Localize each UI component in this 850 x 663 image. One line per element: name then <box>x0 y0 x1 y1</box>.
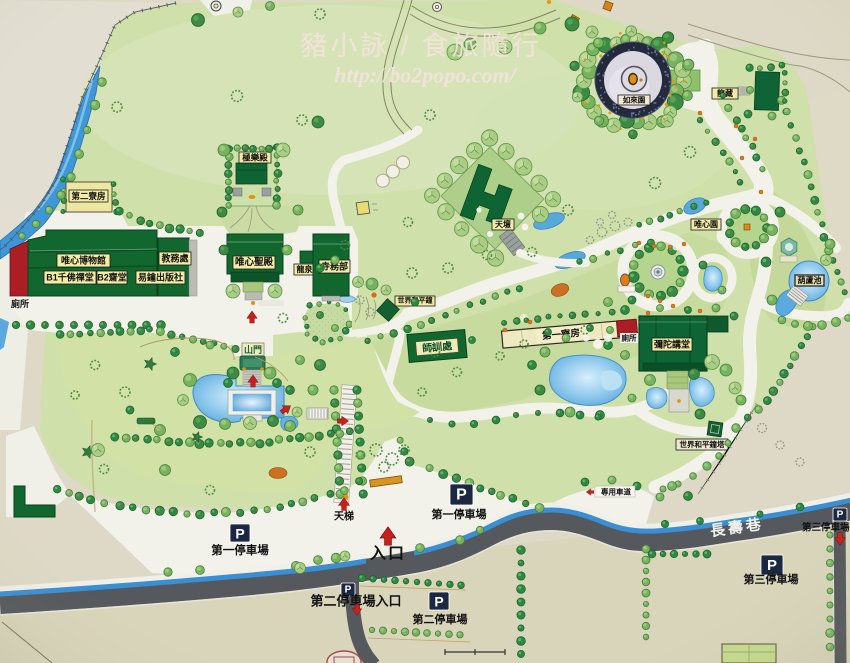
svg-text:豬小詠 / 食旅隨行: 豬小詠 / 食旅隨行 <box>300 31 542 61</box>
svg-text:http://bo2popo.com/: http://bo2popo.com/ <box>334 63 517 88</box>
